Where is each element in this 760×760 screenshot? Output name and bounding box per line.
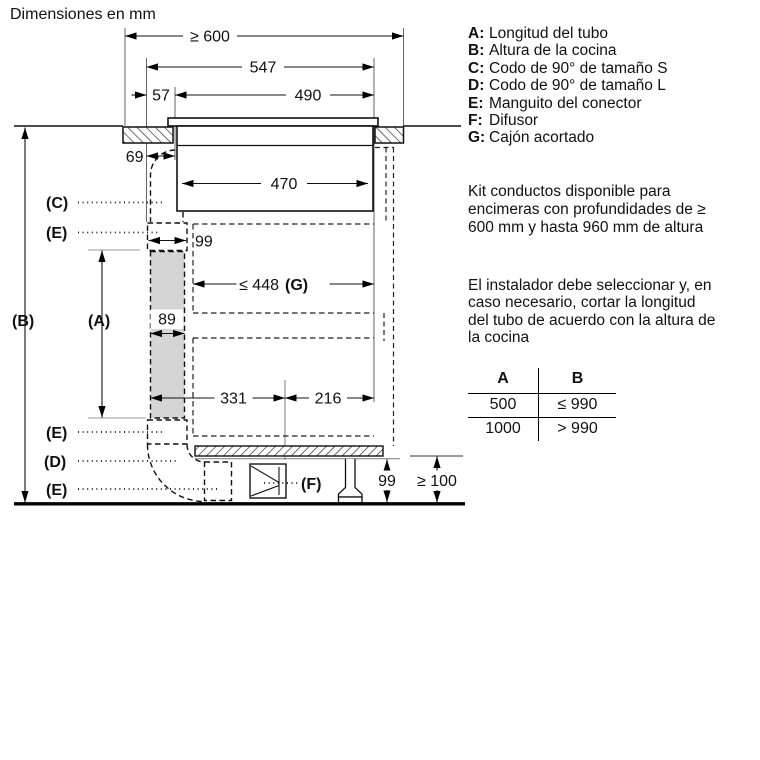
table-cell-r2a: 1000 [468, 418, 539, 441]
plinth-foot [339, 459, 363, 497]
note-installer-line2: caso necesario, cortar la longitud [468, 294, 760, 311]
dim-331: 331 [220, 391, 247, 408]
label-e-top: (E) [46, 225, 67, 242]
label-f: (F) [301, 476, 321, 493]
note-installer-line1: El instalador debe seleccionar y, en [468, 277, 760, 294]
dim-57: 57 [152, 88, 170, 105]
hob-body [177, 126, 373, 211]
table-cell-r2b: > 990 [539, 418, 616, 441]
dim-470: 470 [271, 176, 298, 193]
legend-item-c: C:Codo de 90° de tamaño S [468, 60, 668, 77]
cabinet-outline [375, 148, 394, 447]
dim-490: 490 [295, 88, 322, 105]
connector-sleeve-top [148, 223, 188, 251]
page: Dimensiones en mm [0, 0, 760, 760]
legend-item-e: E:Manguito del conector [468, 95, 668, 112]
note-installer-line4: la cocina [468, 329, 760, 346]
legend-item-g: G:Cajón acortado [468, 129, 668, 146]
label-b: (B) [12, 313, 34, 330]
legend-text-c: Codo de 90° de tamaño S [489, 60, 668, 77]
table-cell-r1a: 500 [468, 394, 539, 418]
note-installer-line3: del tubo de acuerdo con la altura de [468, 312, 760, 329]
legend-text-e: Manguito del conector [489, 95, 642, 112]
note-kit: Kit conductos disponible para encimeras … [468, 183, 760, 237]
legend-text-b: Altura de la cocina [489, 42, 617, 59]
dim-216: 216 [315, 391, 342, 408]
countertop-hatch-right [375, 127, 404, 143]
tube-a [151, 252, 185, 419]
note-kit-line2: encimeras con profundidades de ≥ [468, 201, 760, 219]
table-header-a: A [468, 368, 539, 394]
dim-600: ≥ 600 [190, 29, 230, 46]
dim-99-plinth: 99 [378, 473, 396, 490]
tube-length-table: A B 500 ≤ 990 1000 > 990 [468, 368, 616, 441]
legend-key-g: G: [468, 129, 489, 146]
installation-diagram: ≥ 600 547 57 490 69 470 99 89 ≤ 448 (G) … [0, 0, 470, 520]
label-d: (D) [44, 454, 66, 471]
legend-text-d: Codo de 90° de tamaño L [489, 77, 666, 94]
dim-69: 69 [126, 149, 144, 166]
label-g: (G) [285, 277, 308, 294]
connector-sleeve-bottom [205, 462, 232, 501]
legend-item-a: A:Longitud del tubo [468, 25, 668, 42]
dim-100: ≥ 100 [417, 473, 457, 490]
legend-key-f: F: [468, 112, 489, 129]
dim-99-connector: 99 [195, 234, 213, 251]
dim-448: ≤ 448 [239, 277, 279, 294]
table-cell-r1b: ≤ 990 [539, 394, 616, 418]
table-header-b: B [539, 368, 616, 394]
note-installer: El instalador debe seleccionar y, en cas… [468, 277, 760, 346]
hob-unit [168, 118, 378, 211]
label-e-mid: (E) [46, 425, 67, 442]
dim-547: 547 [250, 60, 277, 77]
legend-text-f: Difusor [489, 112, 538, 129]
connector-sleeve-mid [148, 420, 188, 444]
cabinet-bottom-panel [195, 446, 383, 456]
legend-item-f: F:Difusor [468, 112, 668, 129]
legend-key-d: D: [468, 77, 489, 94]
legend-item-d: D:Codo de 90° de tamaño L [468, 77, 668, 94]
label-c: (C) [46, 195, 68, 212]
note-kit-line1: Kit conductos disponible para [468, 183, 760, 201]
dimension-lines [25, 36, 437, 503]
label-e-bottom: (E) [46, 482, 67, 499]
note-kit-line3: 600 mm y hasta 960 mm de altura [468, 219, 760, 237]
hob-glass [168, 118, 378, 126]
legend-item-b: B:Altura de la cocina [468, 42, 668, 59]
diffuser-f [250, 464, 286, 498]
legend-key-c: C: [468, 60, 489, 77]
label-a: (A) [88, 313, 110, 330]
legend-key-a: A: [468, 25, 489, 42]
dim-89: 89 [158, 312, 176, 329]
legend-text-a: Longitud del tubo [489, 25, 608, 42]
countertop-hatch-left [123, 127, 173, 143]
legend-key-b: B: [468, 42, 489, 59]
legend-text-g: Cajón acortado [489, 129, 594, 146]
legend-key-e: E: [468, 95, 489, 112]
parts-legend: A:Longitud del tubo B:Altura de la cocin… [468, 25, 668, 147]
